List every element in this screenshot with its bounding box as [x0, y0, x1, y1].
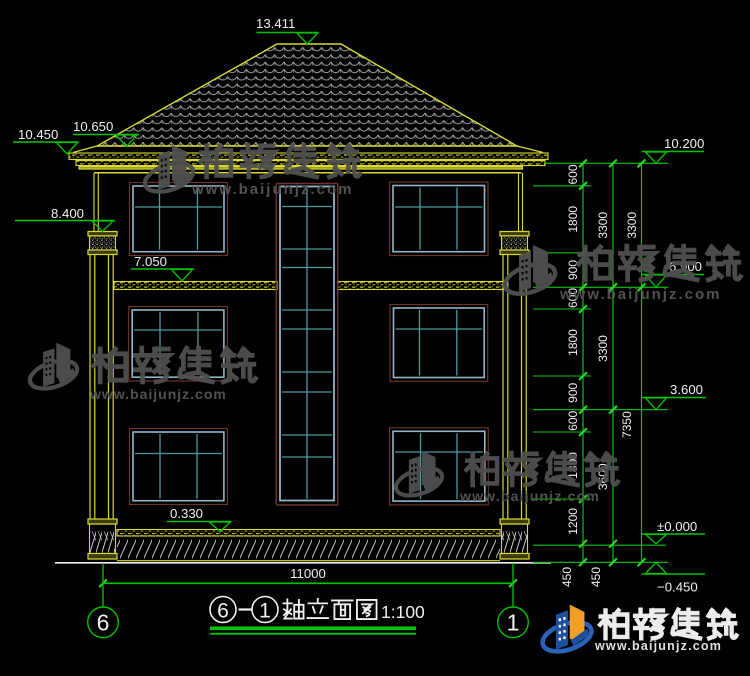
svg-text:6: 6	[217, 600, 229, 623]
svg-text:10.450: 10.450	[18, 127, 58, 142]
svg-text:6: 6	[97, 610, 110, 636]
svg-text:450: 450	[589, 567, 603, 587]
svg-text:600: 600	[566, 164, 580, 184]
svg-text:www.baijunjz.com: www.baijunjz.com	[594, 639, 722, 653]
svg-text:10.650: 10.650	[73, 119, 113, 134]
svg-text:±0.000: ±0.000	[657, 519, 697, 534]
svg-text:3300: 3300	[596, 212, 610, 239]
svg-text:1800: 1800	[566, 206, 580, 233]
svg-text:7.050: 7.050	[134, 254, 167, 269]
svg-text:7350: 7350	[620, 411, 634, 438]
svg-text:3300: 3300	[625, 212, 639, 239]
svg-text:10.200: 10.200	[664, 136, 704, 151]
svg-text:11000: 11000	[290, 566, 326, 581]
svg-text:1: 1	[507, 610, 520, 636]
svg-text:0.330: 0.330	[170, 506, 203, 521]
svg-text:13.411: 13.411	[256, 16, 295, 31]
svg-text:www.baijunjz.com: www.baijunjz.com	[459, 488, 600, 504]
svg-text:8.400: 8.400	[51, 206, 84, 221]
svg-text:1: 1	[259, 600, 271, 623]
svg-text:3300: 3300	[596, 335, 610, 362]
svg-text:1:100: 1:100	[381, 602, 425, 622]
svg-text:1800: 1800	[566, 329, 580, 356]
svg-text:900: 900	[566, 382, 580, 402]
svg-text:1200: 1200	[566, 508, 580, 535]
svg-text:www.baijunjz.com: www.baijunjz.com	[559, 286, 721, 303]
svg-text:3.600: 3.600	[670, 382, 703, 397]
svg-text:−0.450: −0.450	[657, 580, 698, 595]
svg-text:www.baijunjz.com: www.baijunjz.com	[191, 181, 353, 198]
svg-text:600: 600	[566, 410, 580, 430]
svg-text:450: 450	[560, 567, 574, 587]
svg-text:www.baijunjz.com: www.baijunjz.com	[89, 386, 227, 402]
